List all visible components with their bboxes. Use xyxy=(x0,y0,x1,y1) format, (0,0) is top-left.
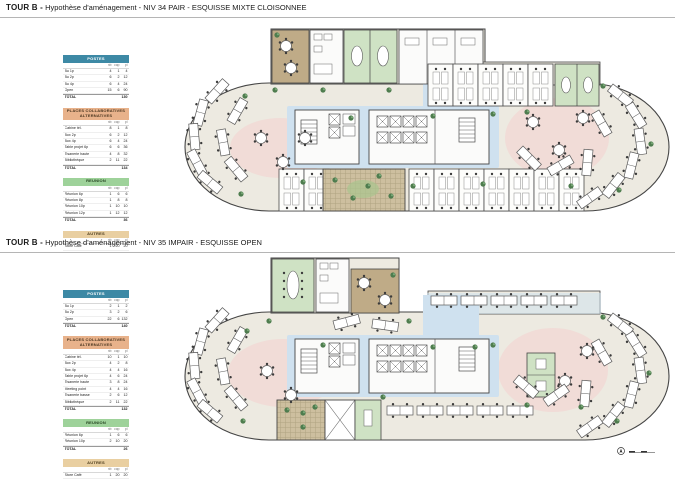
legend-row-capacity: 4 xyxy=(112,139,120,144)
legend-total-row: TOTAL36 xyxy=(63,217,129,223)
legend-row-label: Réunion 6p xyxy=(65,433,104,438)
title-prefix: TOUR B - xyxy=(6,3,43,12)
legend-row-count: 1 xyxy=(104,433,112,438)
legend-total-value: 140 xyxy=(120,324,128,329)
legend-total-value: 36 xyxy=(120,218,128,223)
floor-plan-niv35 xyxy=(183,255,672,463)
legend-row-capacity: 20 xyxy=(112,473,120,478)
legend-group-header: AUTRES xyxy=(63,459,129,467)
legend-row-capacity: 6 xyxy=(112,393,120,398)
meeting-rooms-topright xyxy=(555,64,599,106)
meeting-room-top xyxy=(272,259,314,312)
legend-row-label: Table projet 6p xyxy=(65,145,104,150)
title-text: Hypothèse d'aménagement - NIV 34 PAIR - … xyxy=(43,3,306,12)
legend-total-row: TOTAL140 xyxy=(63,323,129,329)
legend-row-places: 24 xyxy=(120,374,128,379)
title-divider xyxy=(0,17,675,18)
legend-col-header: pl xyxy=(120,298,128,303)
void-skylight xyxy=(325,400,355,440)
legend-col-header: cap xyxy=(112,427,120,432)
legend-row-label: Bu 1p xyxy=(65,304,104,309)
legend-row-capacity: 2 xyxy=(112,133,120,138)
legend-row-label: Tisanerie haute xyxy=(65,152,104,157)
legend-row-label: Réunion 8p xyxy=(65,198,104,203)
legend-group: PLACES COLLABORATIVES ALTERNATIVESnbcapp… xyxy=(63,108,129,171)
legend-total-row: TOTAL26 xyxy=(63,446,129,452)
legend-row-places: 24 xyxy=(120,82,128,87)
legend-row-label: Bibliothèque xyxy=(65,158,104,163)
legend-total-label: TOTAL xyxy=(65,218,104,223)
legend-row-count: 6 xyxy=(104,133,112,138)
legend-row-count: 10 xyxy=(104,355,112,360)
legend-row-places: 12 xyxy=(120,75,128,80)
legend-col-header: nb xyxy=(104,427,112,432)
legend-row-places: 22 xyxy=(120,158,128,163)
legend-total-value: 132 xyxy=(120,407,128,412)
legend-row-label: Open xyxy=(65,88,104,93)
legend-row-places: 6 xyxy=(120,192,128,197)
wc-block xyxy=(310,30,343,83)
legend-total-value: 130 xyxy=(120,95,128,100)
legend-total-label: TOTAL xyxy=(65,447,104,452)
legend-row-label: Store Café xyxy=(65,473,104,478)
legend-row-places: 16 xyxy=(120,368,128,373)
legend-row-capacity: 6 xyxy=(112,317,120,322)
legend-row-label: Réunion 6p xyxy=(65,192,104,197)
legend-row-count: 6 xyxy=(104,75,112,80)
legend-row-label: Box 4p xyxy=(65,368,104,373)
legend-row-label: Box 4p xyxy=(65,139,104,144)
legend-niv34: POSTESnbcapplBu 1p414Bu 2p6212Bu 4p6424O… xyxy=(63,55,129,258)
legend-row-places: 24 xyxy=(120,380,128,385)
legend-row-count: 4 xyxy=(104,374,112,379)
legend-group: POSTESnbcapplBu 1p414Bu 2p6212Bu 4p6424O… xyxy=(63,55,129,101)
legend-group-header: POSTES xyxy=(63,290,129,298)
legend-row-count: 2 xyxy=(104,393,112,398)
legend-row-capacity: 12 xyxy=(112,211,120,216)
legend-total-label: TOTAL xyxy=(65,166,104,171)
legend-row-count: 3 xyxy=(104,310,112,315)
legend-row-places: 10 xyxy=(120,355,128,360)
legend-row-capacity: 2 xyxy=(112,310,120,315)
legend-col-header: cap xyxy=(112,186,120,191)
title-divider xyxy=(0,252,675,253)
legend-row-places: 16 xyxy=(120,387,128,392)
legend-row-places: 12 xyxy=(120,211,128,216)
legend-col-header: nb xyxy=(104,120,112,125)
legend-row-places: 36 xyxy=(120,145,128,150)
legend-row-count: 1 xyxy=(104,198,112,203)
legend-row-capacity: 10 xyxy=(112,439,120,444)
legend-group-header: REUNION xyxy=(63,419,129,427)
cafe-zone xyxy=(351,269,399,313)
legend-row-count: 6 xyxy=(104,145,112,150)
legend-col-header: nb xyxy=(104,349,112,354)
north-arrow-and-scale xyxy=(618,448,656,455)
legend-group: PLACES COLLABORATIVES ALTERNATIVESnbcapp… xyxy=(63,336,129,412)
legend-row-capacity: 4 xyxy=(112,387,120,392)
section-title-niv34: TOUR B - Hypothèse d'aménagement - NIV 3… xyxy=(6,3,307,12)
legend-row-label: Meeting point xyxy=(65,387,104,392)
legend-row-count: 2 xyxy=(104,400,112,405)
legend-col-header: nb xyxy=(104,298,112,303)
legend-row-label: Bu 2p xyxy=(65,75,104,80)
legend-row-count: 2 xyxy=(104,158,112,163)
legend-row-count: 6 xyxy=(104,82,112,87)
legend-row-capacity: 6 xyxy=(112,145,120,150)
legend-col-header: pl xyxy=(120,467,128,472)
meeting-rooms-top xyxy=(344,30,397,83)
legend-row-places: 8 xyxy=(120,126,128,131)
legend-row-places: 20 xyxy=(120,439,128,444)
legend-row-places: 6 xyxy=(120,433,128,438)
terrace xyxy=(323,169,405,211)
legend-row-count: 4 xyxy=(104,69,112,74)
legend-row-count: 2 xyxy=(104,439,112,444)
legend-row-capacity: 1 xyxy=(112,355,120,360)
legend-row-count: 15 xyxy=(104,88,112,93)
legend-row-label: Bibliothèque xyxy=(65,400,104,405)
legend-row-capacity: 6 xyxy=(112,374,120,379)
legend-row-capacity: 4 xyxy=(112,368,120,373)
legend-total-row: TOTAL132 xyxy=(63,406,129,412)
legend-total-value: 134 xyxy=(120,166,128,171)
legend-row-capacity: 11 xyxy=(112,158,120,163)
legend-row-count: 1 xyxy=(104,473,112,478)
legend-group: POSTESnbcapplBu 1p212Bu 2p326Open226132T… xyxy=(63,290,129,329)
legend-row-count: 4 xyxy=(104,387,112,392)
legend-row-count: 6 xyxy=(104,139,112,144)
legend-row-count: 3 xyxy=(104,380,112,385)
legend-row-capacity: 2 xyxy=(112,361,120,366)
legend-row-capacity: 8 xyxy=(112,380,120,385)
legend-col-header: nb xyxy=(104,63,112,68)
legend-row-places: 10 xyxy=(120,204,128,209)
legend-row-capacity: 11 xyxy=(112,400,120,405)
legend-row-capacity: 10 xyxy=(112,204,120,209)
legend-row-places: 4 xyxy=(120,69,128,74)
legend-row-label: Bu 2p xyxy=(65,310,104,315)
legend-row-capacity: 6 xyxy=(112,433,120,438)
title-text: Hypothèse d'aménagement - NIV 35 IMPAIR … xyxy=(43,238,262,247)
legend-row-count: 4 xyxy=(104,368,112,373)
wc-block xyxy=(316,259,349,312)
legend-row-label: Bu 1p xyxy=(65,69,104,74)
legend-group: REUNIONnbcapplRéunion 6p166Réunion 10p21… xyxy=(63,419,129,452)
legend-row-places: 2 xyxy=(120,304,128,309)
legend-row-label: Bu 4p xyxy=(65,82,104,87)
legend-row-count: 4 xyxy=(104,361,112,366)
legend-total-row: TOTAL130 xyxy=(63,94,129,100)
title-prefix: TOUR B - xyxy=(6,238,43,247)
legend-row-count: 1 xyxy=(104,204,112,209)
terrace xyxy=(277,400,325,440)
legend-row-label: Tisanerie haute xyxy=(65,380,104,385)
legend-row-places: 12 xyxy=(120,133,128,138)
legend-group-header: PLACES COLLABORATIVES ALTERNATIVES xyxy=(63,108,129,121)
legend-total-row: TOTAL134 xyxy=(63,165,129,171)
legend-row-capacity: 1 xyxy=(112,304,120,309)
legend-row-capacity: 8 xyxy=(112,198,120,203)
legend-col-header: pl xyxy=(120,120,128,125)
legend-row-places: 8 xyxy=(120,361,128,366)
office-cell-row-top xyxy=(428,64,553,106)
legend-group: AUTRESnbcapplStore Café12020 xyxy=(63,459,129,479)
legend-row-places: 32 xyxy=(120,152,128,157)
legend-row-capacity: 6 xyxy=(112,192,120,197)
legend-row-count: 1 xyxy=(104,211,112,216)
legend-row-places: 90 xyxy=(120,88,128,93)
legend-total-label: TOTAL xyxy=(65,407,104,412)
legend-col-header: cap xyxy=(112,63,120,68)
legend-group-header: REUNION xyxy=(63,178,129,186)
legend-row-label: Réunion 10p xyxy=(65,204,104,209)
legend-row-label: Cabine tél. xyxy=(65,355,104,360)
legend-col-header: cap xyxy=(112,120,120,125)
floor-plan-niv34 xyxy=(183,26,672,234)
legend-row-count: 1 xyxy=(104,192,112,197)
legend-col-header: nb xyxy=(104,467,112,472)
legend-row-places: 20 xyxy=(120,473,128,478)
legend-row-capacity: 1 xyxy=(112,69,120,74)
legend-row-label: Cabine tél. xyxy=(65,126,104,131)
legend-row-label: Box 2p xyxy=(65,133,104,138)
section-title-niv35: TOUR B - Hypothèse d'aménagement - NIV 3… xyxy=(6,238,262,247)
legend-group: REUNIONnbcapplRéunion 6p166Réunion 8p188… xyxy=(63,178,129,224)
legend-total-label: TOTAL xyxy=(65,324,104,329)
legend-row-capacity: 6 xyxy=(112,88,120,93)
legend-row-label: Box 2p xyxy=(65,361,104,366)
legend-row-label: Table projet 6p xyxy=(65,374,104,379)
legend-row-places: 8 xyxy=(120,198,128,203)
legend-row: Store Café12020 xyxy=(63,473,129,479)
legend-col-header: cap xyxy=(112,467,120,472)
legend-col-header: pl xyxy=(120,186,128,191)
meeting-room-bottom xyxy=(355,400,381,440)
legend-row-label: Tisanerie basse xyxy=(65,393,104,398)
legend-row-capacity: 1 xyxy=(112,126,120,131)
legend-col-header: cap xyxy=(112,349,120,354)
legend-row-places: 22 xyxy=(120,400,128,405)
core-rooms xyxy=(295,110,489,164)
legend-row-places: 24 xyxy=(120,139,128,144)
legend-row-label: Réunion 12p xyxy=(65,211,104,216)
legend-group-header: POSTES xyxy=(63,55,129,63)
legend-row-capacity: 4 xyxy=(112,82,120,87)
legend-row-count: 2 xyxy=(104,304,112,309)
legend-row-capacity: 2 xyxy=(112,75,120,80)
legend-row-label: Réunion 10p xyxy=(65,439,104,444)
legend-row-count: 8 xyxy=(104,126,112,131)
legend-col-header: pl xyxy=(120,349,128,354)
legend-row-places: 12 xyxy=(120,393,128,398)
cafe-zone xyxy=(272,30,309,83)
legend-row-count: 4 xyxy=(104,152,112,157)
legend-col-header: pl xyxy=(120,63,128,68)
legend-niv35: POSTESnbcapplBu 1p212Bu 2p326Open226132T… xyxy=(63,290,129,486)
legend-row-count: 22 xyxy=(104,317,112,322)
legend-col-header: nb xyxy=(104,186,112,191)
legend-row-label: Open xyxy=(65,317,104,322)
legend-total-value: 26 xyxy=(120,447,128,452)
legend-row-capacity: 8 xyxy=(112,152,120,157)
legend-row-places: 6 xyxy=(120,310,128,315)
legend-row-places: 132 xyxy=(120,317,128,322)
legend-group-header: PLACES COLLABORATIVES ALTERNATIVES xyxy=(63,336,129,349)
legend-col-header: pl xyxy=(120,427,128,432)
legend-col-header: cap xyxy=(112,298,120,303)
legend-total-label: TOTAL xyxy=(65,95,104,100)
